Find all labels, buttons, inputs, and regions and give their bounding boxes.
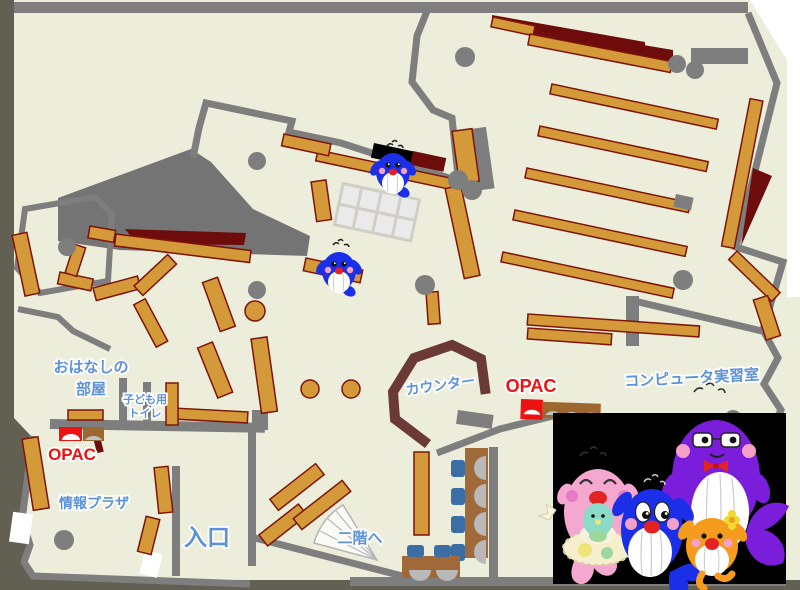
chair — [434, 545, 451, 557]
label-kids-toilet: 子ども用 — [123, 393, 167, 406]
label-opac-left: OPAC — [48, 445, 96, 464]
round-table — [342, 380, 360, 398]
library-floor-map: おはなしの 部屋 子ども用 トイレ OPAC 情報プラザ 入口 二階へ カウンタ… — [0, 0, 800, 590]
round-table — [245, 301, 265, 321]
label-kids-toilet-2: トイレ — [129, 407, 162, 420]
label-to-second-floor: 二階へ — [337, 529, 382, 547]
chair — [407, 545, 424, 557]
round-table — [301, 380, 319, 398]
label-storytelling-room-2: 部屋 — [76, 380, 106, 398]
label-info-plaza: 情報プラザ — [59, 495, 129, 511]
floor-map-canvas: おはなしの 部屋 子ども用 トイレ OPAC 情報プラザ 入口 二階へ カウンタ… — [0, 0, 800, 590]
chair — [451, 460, 465, 477]
mascot-photo — [539, 383, 789, 590]
label-opac-right: OPAC — [506, 376, 557, 396]
label-entrance: 入口 — [184, 524, 230, 550]
opac-terminal-left — [59, 427, 104, 441]
chair — [451, 516, 465, 533]
label-storytelling-room: おはなしの — [53, 359, 128, 376]
chair — [451, 488, 465, 505]
